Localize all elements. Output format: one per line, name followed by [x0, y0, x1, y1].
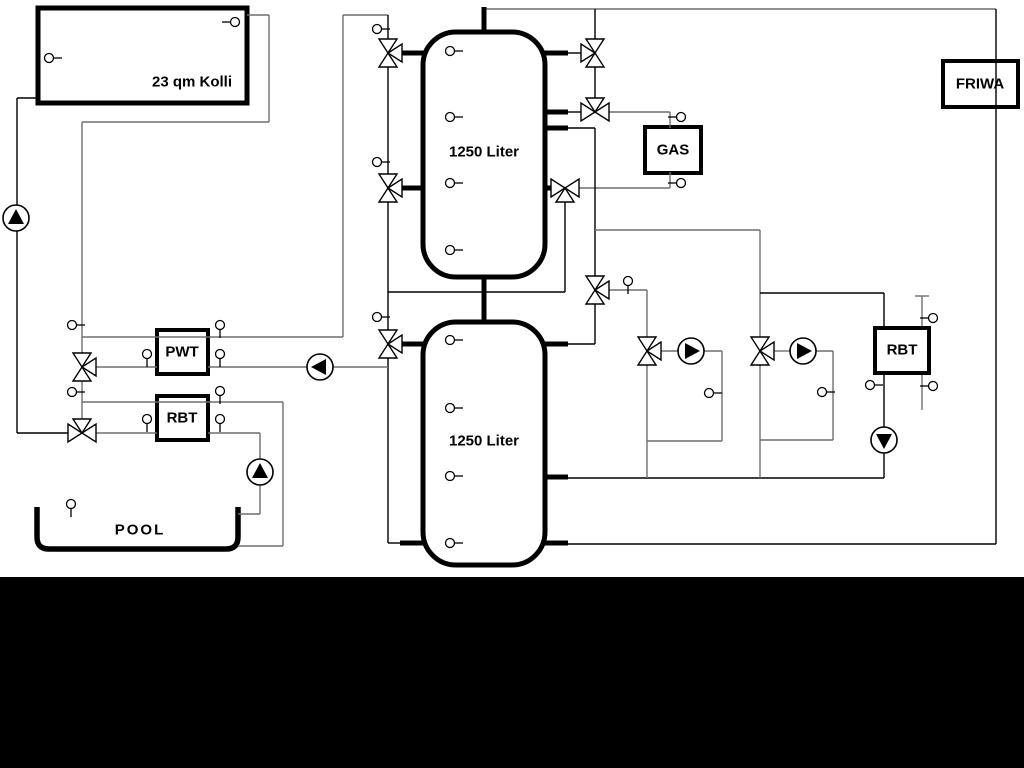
- sensor-bulb: [216, 387, 225, 396]
- pump-icon: [790, 338, 816, 364]
- gas-label: GAS: [657, 143, 690, 158]
- pump-icon: [247, 459, 273, 485]
- temperature-sensor-icon: [216, 415, 225, 433]
- sensor-bulb: [373, 158, 382, 167]
- temperature-sensor-icon: [624, 277, 633, 295]
- sensor-bulb: [446, 404, 455, 413]
- sensor-bulb: [67, 500, 76, 509]
- temperature-sensor-icon: [866, 381, 884, 390]
- collector-label: 23 qm Kolli: [152, 75, 232, 90]
- three-way-valve-icon: [581, 98, 609, 121]
- sensor-bulb: [705, 389, 714, 398]
- three-way-valve-icon: [68, 419, 96, 442]
- friwa-label: FRIWA: [956, 77, 1004, 92]
- sensor-bulb: [929, 314, 938, 323]
- rbt-left-label: RBT: [167, 411, 198, 426]
- sensor-bulb: [373, 313, 382, 322]
- temperature-sensor-icon: [143, 415, 152, 433]
- three-way-valve-icon: [751, 337, 774, 365]
- pool-label: POOL: [115, 523, 166, 538]
- temperature-sensor-icon: [705, 389, 723, 398]
- pump-icon: [307, 354, 333, 380]
- temperature-sensor-icon: [143, 350, 152, 368]
- pump-icon: [678, 338, 704, 364]
- sensor-bulb: [143, 350, 152, 359]
- sensor-bulb: [446, 336, 455, 345]
- sensor-bulb: [446, 113, 455, 122]
- three-way-valve-icon: [581, 39, 604, 67]
- sensor-bulb: [929, 382, 938, 391]
- rbt-right-label: RBT: [887, 343, 918, 358]
- sensor-bulb: [446, 246, 455, 255]
- sensor-bulb: [45, 54, 54, 63]
- sensor-bulb: [446, 472, 455, 481]
- sensor-bulb: [818, 388, 827, 397]
- bottom-bar: [0, 577, 1024, 768]
- sensor-bulb: [68, 321, 77, 330]
- three-way-valve-icon: [551, 179, 579, 202]
- temperature-sensor-icon: [67, 500, 76, 518]
- sensor-bulb: [216, 350, 225, 359]
- three-way-valve-icon: [638, 337, 661, 365]
- three-way-valve-icon: [379, 39, 402, 67]
- temperature-sensor-icon: [216, 350, 225, 368]
- sensor-bulb: [677, 113, 686, 122]
- three-way-valve-icon: [379, 174, 402, 202]
- sensor-bulb: [446, 539, 455, 548]
- sensor-bulb: [231, 18, 240, 27]
- pump-icon: [3, 205, 29, 231]
- three-way-valve-icon: [586, 276, 609, 304]
- sensor-bulb: [68, 388, 77, 397]
- sensor-bulb: [143, 415, 152, 424]
- pump-icon: [871, 427, 897, 453]
- schematic-page: 23 qm Kolli 1250 Liter 1250 Liter PWT RB…: [0, 0, 1024, 768]
- sensor-bulb: [216, 415, 225, 424]
- sensor-bulb: [216, 321, 225, 330]
- sensor-bulb: [866, 381, 875, 390]
- tank2-label: 1250 Liter: [449, 434, 519, 449]
- sensor-bulb: [373, 25, 382, 34]
- tank1-label: 1250 Liter: [449, 145, 519, 160]
- sensor-bulb: [446, 47, 455, 56]
- sensor-bulb: [677, 179, 686, 188]
- temperature-sensor-icon: [216, 321, 225, 339]
- pwt-label: PWT: [165, 345, 198, 360]
- sensor-bulb: [624, 277, 633, 286]
- three-way-valve-icon: [379, 330, 402, 358]
- sensor-bulb: [446, 179, 455, 188]
- three-way-valve-icon: [73, 353, 96, 381]
